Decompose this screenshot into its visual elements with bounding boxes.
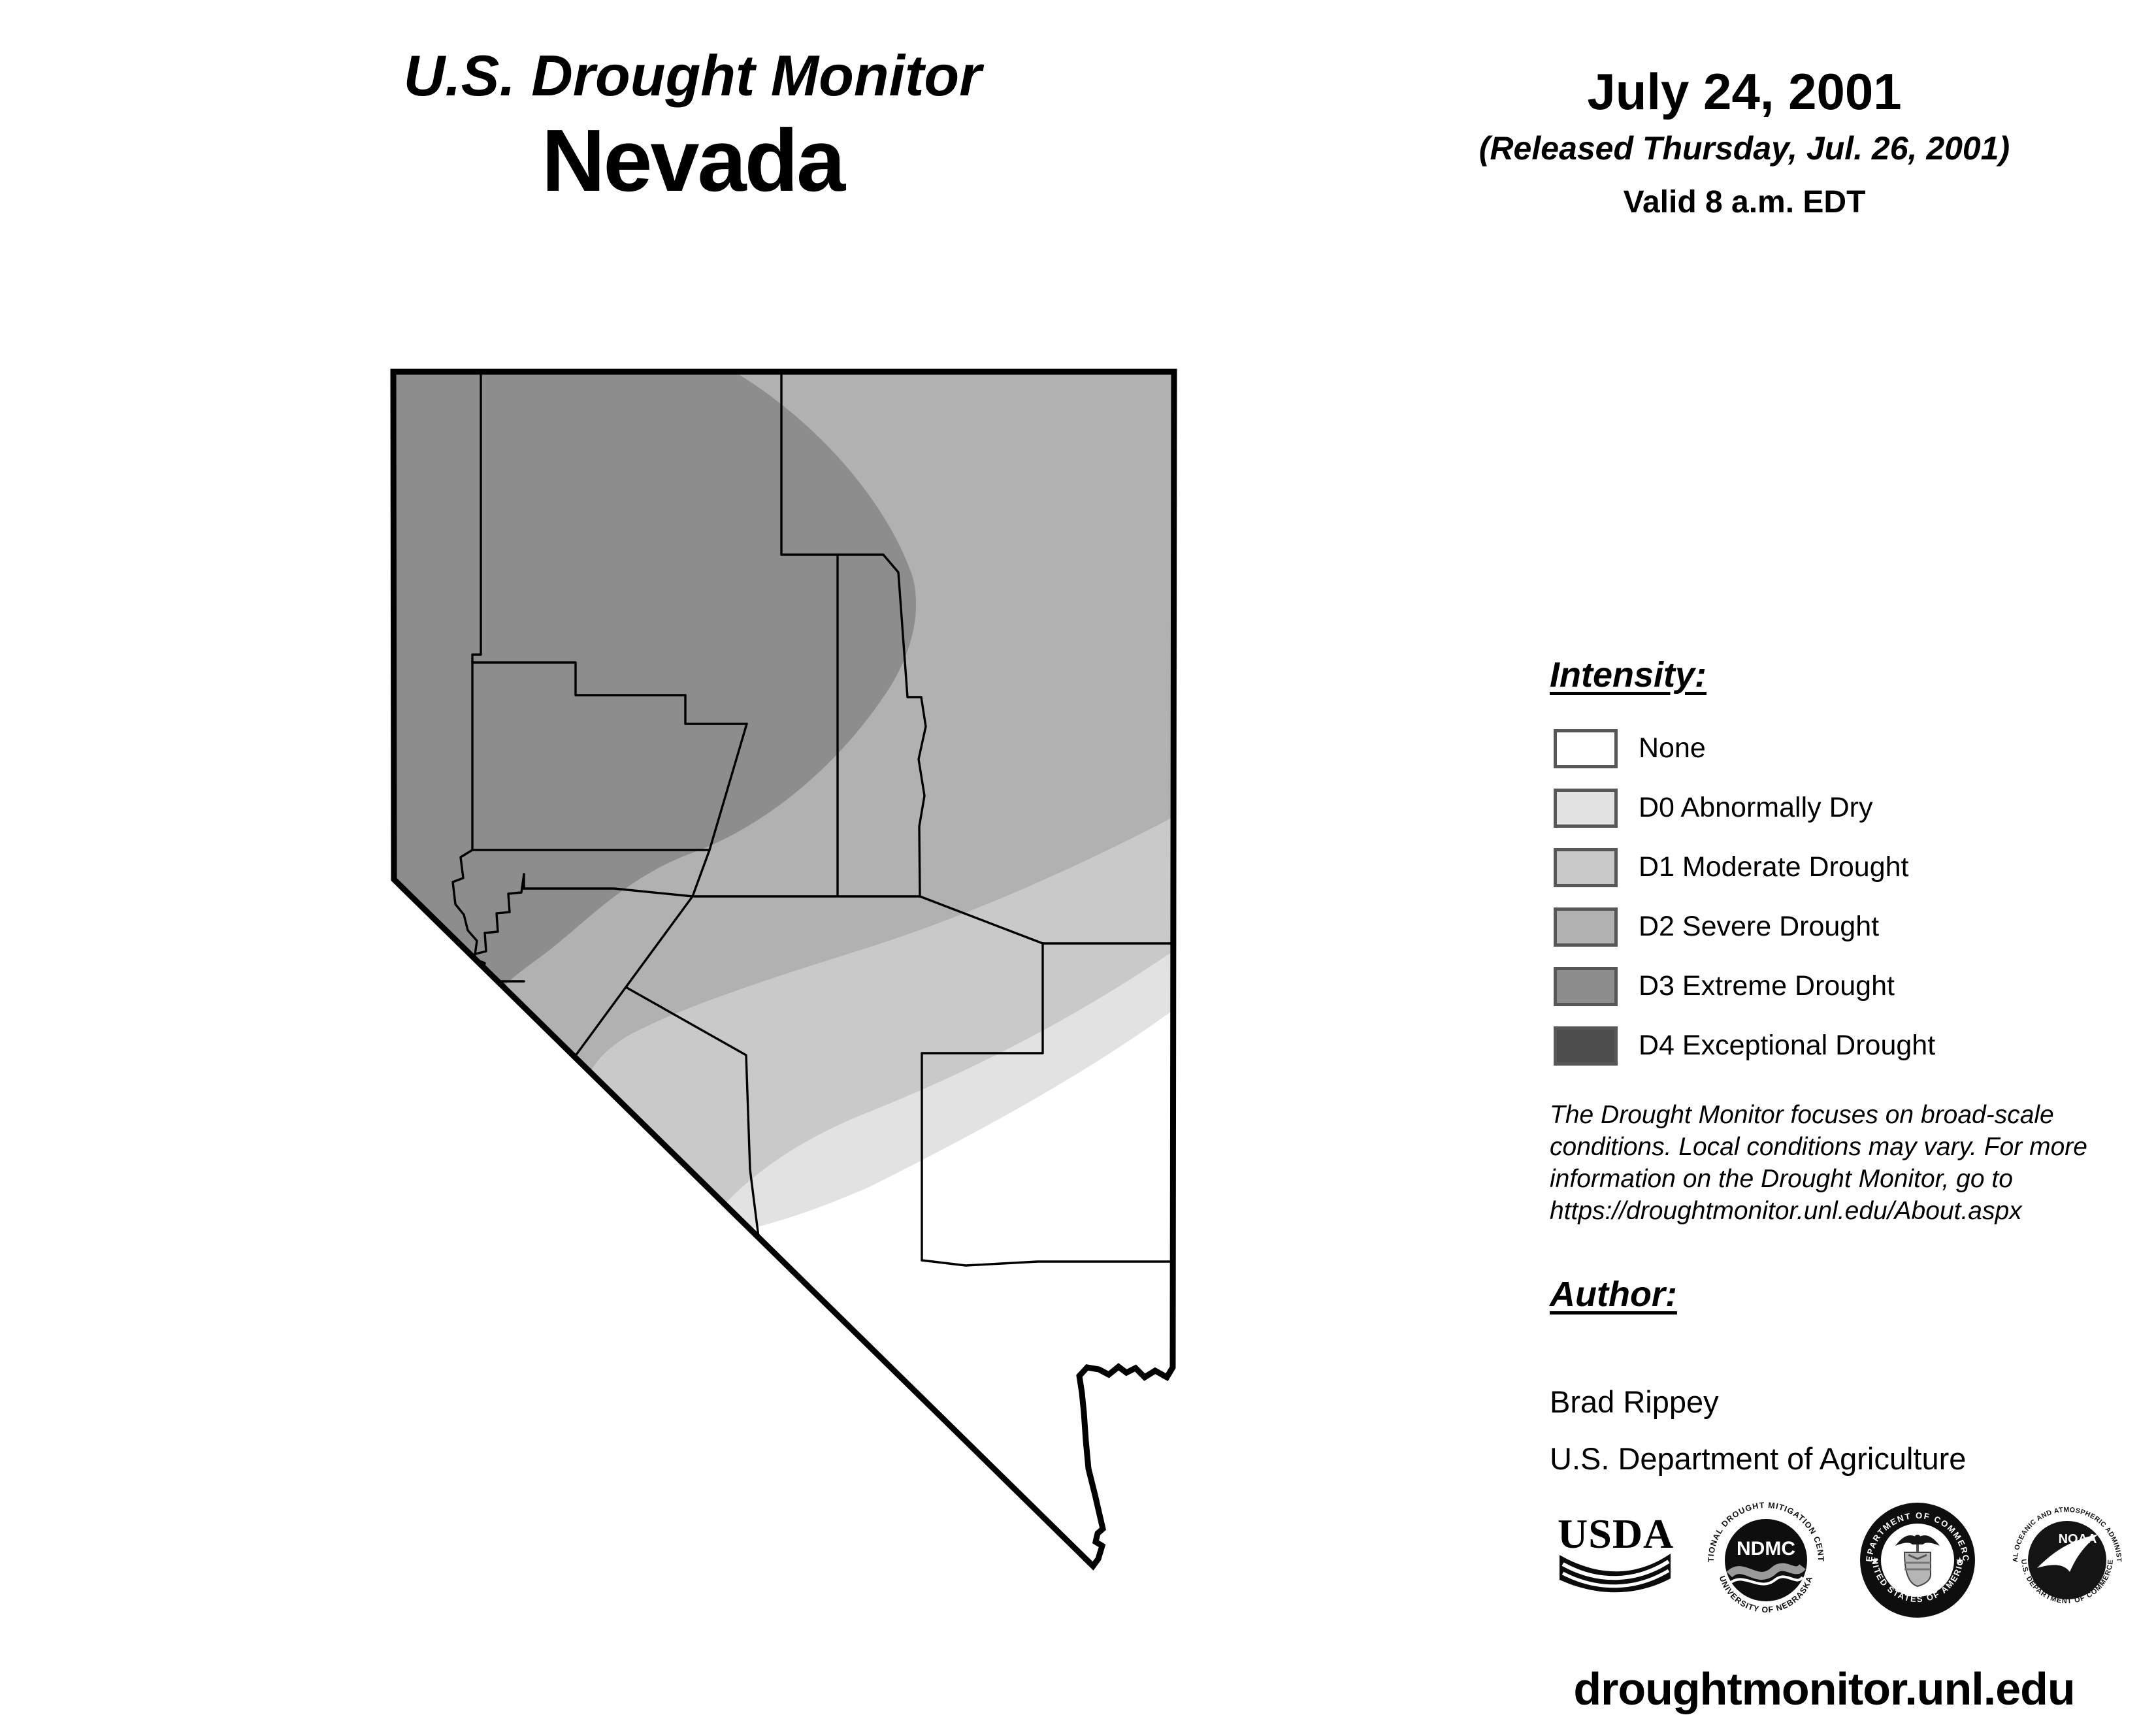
legend-label-D0: D0 Abnormally Dry (1618, 792, 1872, 824)
noaa-logo-text: NOAA (2059, 1532, 2097, 1546)
nevada-map-svg (363, 350, 1209, 1597)
noaa-logo: NATIONAL OCEANIC AND ATMOSPHERIC ADMINIS… (2011, 1504, 2123, 1616)
drought-intensity-legend: NoneD0 Abnormally DryD1 Moderate Drought… (1554, 719, 1935, 1075)
agency-logos: USDA NATIONAL DROUGHT MITIGATION CENTER … (1558, 1499, 2132, 1620)
svg-text:★: ★ (1870, 1556, 1879, 1567)
usda-field-swoosh-icon (1558, 1552, 1673, 1601)
title-block: U.S. Drought Monitor Nevada (353, 46, 1032, 204)
author-name: Brad Rippey (1550, 1384, 1719, 1420)
author-organization: U.S. Department of Agriculture (1550, 1441, 1966, 1477)
drought-monitor-url: droughtmonitor.unl.edu (1550, 1663, 2099, 1715)
disclaimer-line: information on the Drought Monitor, go t… (1550, 1163, 2099, 1195)
legend-swatch-D1 (1554, 848, 1618, 887)
department-of-commerce-seal: DEPARTMENT OF COMMERCE UNITED STATES OF … (1859, 1502, 1976, 1618)
disclaimer-line: The Drought Monitor focuses on broad-sca… (1550, 1099, 2099, 1131)
legend-label-D2: D2 Severe Drought (1618, 911, 1879, 943)
svg-text:★: ★ (1955, 1556, 1964, 1567)
ndmc-logo-text: NDMC (1737, 1538, 1795, 1560)
legend-row-D4: D4 Exceptional Drought (1554, 1016, 1935, 1075)
usda-logo-text: USDA (1558, 1516, 1673, 1552)
legend-row-D0: D0 Abnormally Dry (1554, 778, 1935, 838)
ndmc-disc (1725, 1519, 1807, 1601)
legend-swatch-D2 (1554, 907, 1618, 947)
release-date: (Released Thursday, Jul. 26, 2001) (1463, 129, 2025, 167)
ndmc-logo: NATIONAL DROUGHT MITIGATION CENTER UNIVE… (1708, 1502, 1824, 1618)
date-block: July 24, 2001 (Released Thursday, Jul. 2… (1463, 65, 2025, 220)
disclaimer-line: https://droughtmonitor.unl.edu/About.asp… (1550, 1195, 2099, 1227)
state-name-title: Nevada (353, 116, 1032, 204)
legend-label-D4: D4 Exceptional Drought (1618, 1030, 1935, 1062)
legend-label-none: None (1618, 732, 1706, 764)
nevada-drought-map (363, 350, 1209, 1601)
legend-row-D1: D1 Moderate Drought (1554, 838, 1935, 897)
legend-swatch-none (1554, 729, 1618, 768)
legend-swatch-D3 (1554, 967, 1618, 1006)
legend-label-D1: D1 Moderate Drought (1618, 851, 1909, 883)
legend-label-D3: D3 Extreme Drought (1618, 970, 1895, 1002)
author-heading: Author: (1550, 1274, 1677, 1315)
legend-heading: Intensity: (1550, 655, 1707, 695)
disclaimer-text: The Drought Monitor focuses on broad-sca… (1550, 1099, 2099, 1227)
legend-swatch-D0 (1554, 789, 1618, 828)
usda-logo: USDA (1558, 1516, 1673, 1604)
legend-swatch-D4 (1554, 1026, 1618, 1066)
map-date: July 24, 2001 (1463, 65, 2025, 119)
page-title: U.S. Drought Monitor (353, 46, 1032, 106)
legend-row-D2: D2 Severe Drought (1554, 897, 1935, 956)
legend-row-none: None (1554, 719, 1935, 778)
legend-row-D3: D3 Extreme Drought (1554, 956, 1935, 1016)
drought-monitor-page: { "header": { "title": "U.S. Drought Mon… (0, 0, 2156, 1666)
valid-time: Valid 8 a.m. EDT (1463, 184, 2025, 220)
disclaimer-line: conditions. Local conditions may vary. F… (1550, 1131, 2099, 1163)
